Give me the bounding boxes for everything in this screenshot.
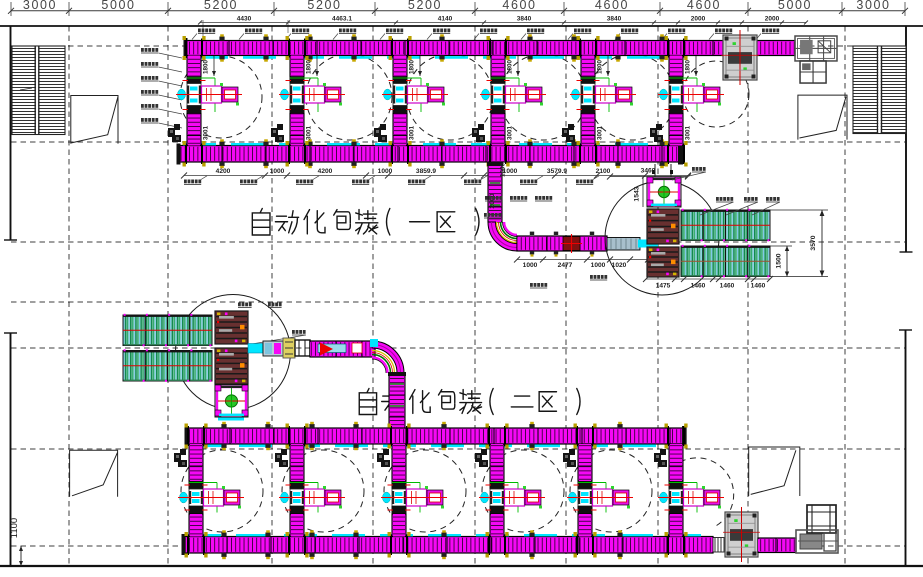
svg-text:3001: 3001 (203, 126, 210, 141)
svg-text:3840: 3840 (517, 16, 532, 23)
svg-text:1800: 1800 (409, 60, 416, 75)
svg-text:3001: 3001 (685, 126, 692, 141)
svg-text:5000: 5000 (778, 0, 812, 12)
svg-text:5200: 5200 (204, 0, 238, 12)
svg-text:1800: 1800 (306, 60, 313, 75)
svg-text:1000: 1000 (270, 168, 285, 175)
svg-text:1800: 1800 (203, 60, 210, 75)
svg-text:2000: 2000 (765, 16, 780, 23)
svg-text:1460: 1460 (751, 283, 766, 290)
svg-text:3859.9: 3859.9 (416, 168, 437, 175)
svg-text:4200: 4200 (318, 168, 333, 175)
svg-text:3001: 3001 (507, 126, 514, 141)
svg-text:3460: 3460 (641, 168, 656, 175)
svg-text:4140: 4140 (438, 16, 453, 23)
svg-text:2477: 2477 (558, 262, 573, 269)
svg-text:1600: 1600 (500, 163, 507, 178)
svg-text:5200: 5200 (307, 0, 341, 12)
svg-text:1000: 1000 (523, 262, 538, 269)
svg-text:1500: 1500 (776, 253, 783, 268)
svg-text:1475: 1475 (656, 283, 671, 290)
svg-text:3001: 3001 (306, 126, 313, 141)
svg-text:1800: 1800 (685, 60, 692, 75)
svg-text:3000: 3000 (856, 0, 890, 12)
svg-text:1000: 1000 (378, 168, 393, 175)
svg-text:5000: 5000 (101, 0, 135, 12)
svg-text:3000: 3000 (23, 0, 57, 12)
svg-text:3001: 3001 (597, 126, 604, 141)
svg-text:1000: 1000 (591, 262, 606, 269)
svg-text:4600: 4600 (595, 0, 629, 12)
svg-text:2100: 2100 (596, 168, 611, 175)
svg-text:2000: 2000 (691, 16, 706, 23)
svg-text:4600: 4600 (502, 0, 536, 12)
svg-text:1460: 1460 (691, 283, 706, 290)
svg-text:1100: 1100 (9, 518, 20, 538)
svg-text:3570: 3570 (810, 235, 817, 250)
svg-text:1543: 1543 (634, 186, 641, 201)
svg-text:4200: 4200 (216, 168, 231, 175)
svg-text:4463.1: 4463.1 (332, 16, 352, 23)
svg-text:4600: 4600 (687, 0, 721, 12)
svg-text:3579.9: 3579.9 (547, 168, 568, 175)
svg-text:3840: 3840 (607, 16, 622, 23)
svg-text:5200: 5200 (408, 0, 442, 12)
svg-text:1460: 1460 (720, 283, 735, 290)
svg-text:4430: 4430 (237, 16, 252, 23)
svg-text:1800: 1800 (597, 60, 604, 75)
svg-text:1800: 1800 (507, 60, 514, 75)
svg-text:3001: 3001 (409, 126, 416, 141)
